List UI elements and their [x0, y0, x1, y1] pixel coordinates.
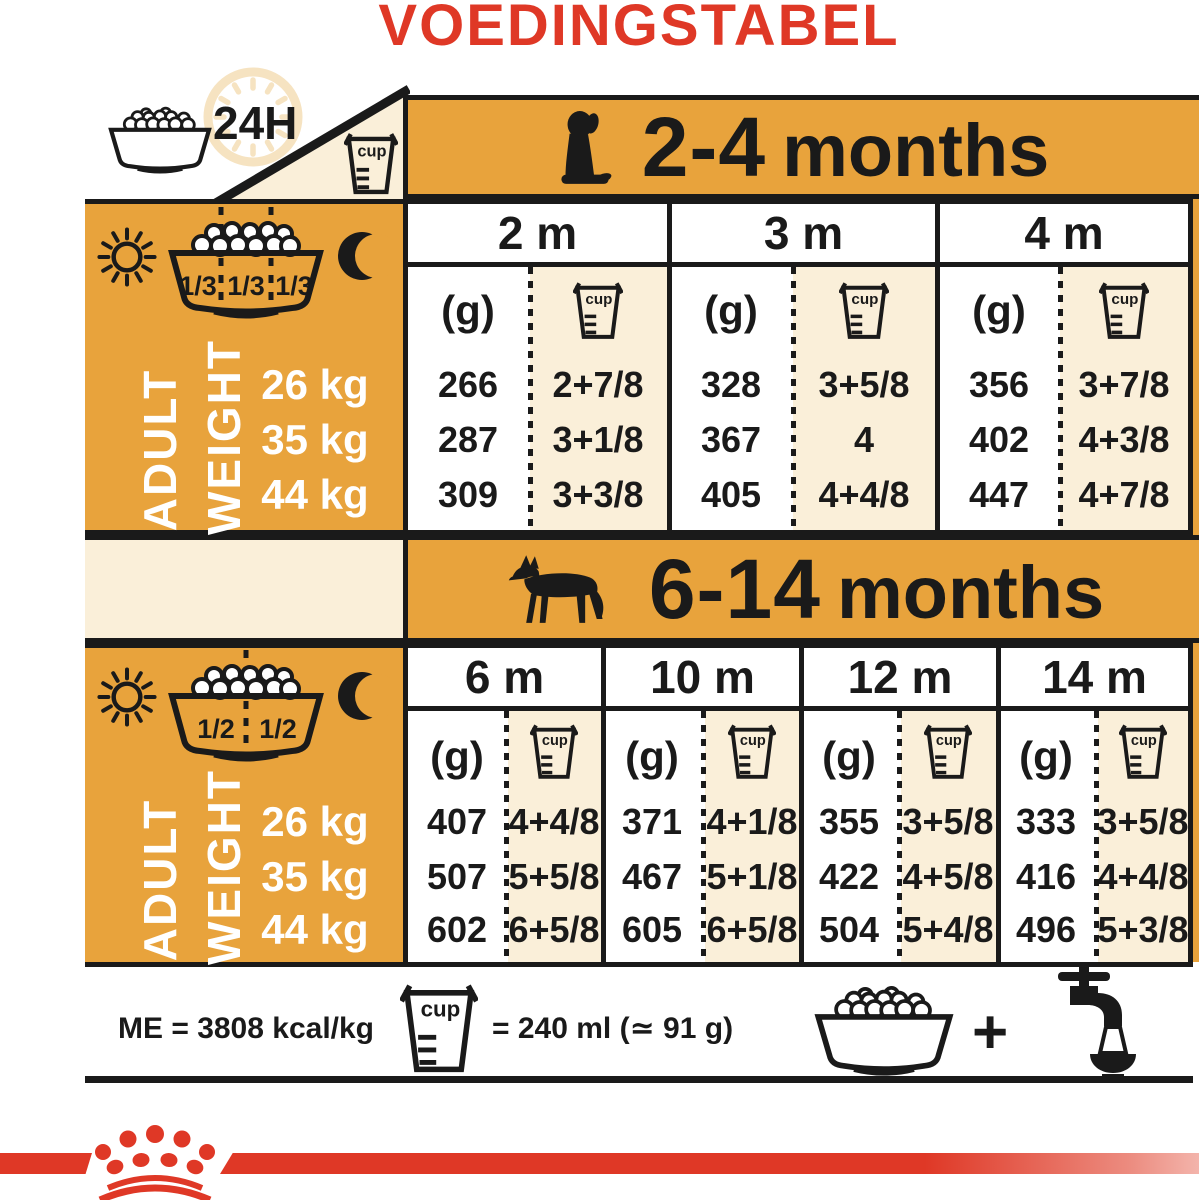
- gram-value: 266: [408, 363, 528, 407]
- month-header-cell: 14 m: [996, 643, 1193, 711]
- cup-value: 2+7/8: [533, 363, 663, 407]
- grams-header: (g): [408, 287, 528, 335]
- moon-icon: [338, 227, 390, 285]
- kibble-bowl-icon: [104, 106, 216, 176]
- cup-value: 4+7/8: [1059, 473, 1189, 517]
- gram-value: 356: [939, 363, 1059, 407]
- gram-value: 507: [402, 855, 512, 899]
- brand-stripe-right: [220, 1153, 1199, 1174]
- age-unit: months: [782, 108, 1049, 193]
- grams-header: (g): [597, 733, 707, 781]
- 24h-label: 24H: [213, 98, 297, 148]
- gram-value: 287: [408, 418, 528, 462]
- gram-value: 496: [991, 908, 1101, 952]
- plus-sign: +: [972, 998, 1008, 1068]
- month-header: 10 m: [650, 650, 755, 704]
- gram-value: 371: [597, 800, 707, 844]
- month-header-cell: 12 m: [799, 643, 996, 711]
- water-tap-icon: [1032, 966, 1144, 1078]
- month-header: 6 m: [465, 650, 544, 704]
- cup-value: 3+5/8: [893, 800, 1003, 844]
- cup-value: 3+7/8: [1059, 363, 1189, 407]
- grams-header: (g): [671, 287, 791, 335]
- weight-value: 26 kg: [240, 363, 390, 407]
- section-2-left-spacer: [85, 535, 403, 643]
- month-header: 2 m: [498, 206, 577, 260]
- grams-header: (g): [794, 733, 904, 781]
- cup-icon-label: cup: [1111, 291, 1138, 308]
- cup-value: 4+4/8: [799, 473, 929, 517]
- grams-header: (g): [402, 733, 512, 781]
- gram-value: 422: [794, 855, 904, 899]
- gram-value: 355: [794, 800, 904, 844]
- sun-icon: [95, 665, 159, 729]
- measuring-cup-icon: cup: [728, 723, 776, 781]
- measuring-cup-icon: cup: [573, 281, 623, 341]
- gram-value: 467: [597, 855, 707, 899]
- month-header-cell: 6 m: [403, 643, 601, 711]
- cup-value: 4+3/8: [1059, 418, 1189, 462]
- cup-icon-label: cup: [1131, 733, 1157, 749]
- cup-icon-label: cup: [542, 733, 568, 749]
- month-header-cell: 4 m: [935, 199, 1193, 267]
- gram-value: 416: [991, 855, 1101, 899]
- food-bowl-icon: [806, 986, 962, 1078]
- grams-header: (g): [991, 733, 1101, 781]
- brand-stripe-left: [0, 1153, 92, 1174]
- cup-equivalence-text: = 240 ml (≃ 91 g): [492, 1008, 733, 1050]
- weight-value: 35 kg: [240, 855, 390, 899]
- cup-value: 3+3/8: [533, 473, 663, 517]
- measuring-cup-icon: cup: [400, 982, 478, 1076]
- cup-value: 6+5/8: [697, 908, 807, 952]
- gram-value: 333: [991, 800, 1101, 844]
- gram-value: 405: [671, 473, 791, 517]
- weight-value: 35 kg: [240, 418, 390, 462]
- age-range: 6-14: [649, 541, 821, 638]
- dotted-divider: [791, 267, 796, 530]
- cup-icon-label: cup: [740, 733, 766, 749]
- gram-value: 309: [408, 473, 528, 517]
- month-header-cell: 10 m: [601, 643, 799, 711]
- cup-value: 5+5/8: [499, 855, 609, 899]
- gram-value: 602: [402, 908, 512, 952]
- cup-value: 4+1/8: [697, 800, 807, 844]
- gram-value: 328: [671, 363, 791, 407]
- month-header-cell: 2 m: [403, 199, 667, 267]
- age-range: 2-4: [642, 99, 766, 196]
- section-2-age-band: 6-14 months: [403, 535, 1199, 643]
- weight-value: 26 kg: [240, 800, 390, 844]
- cup-value: 3+5/8: [799, 363, 929, 407]
- cup-value: 3+5/8: [1088, 800, 1198, 844]
- cup-value: 5+1/8: [697, 855, 807, 899]
- gram-value: 367: [671, 418, 791, 462]
- adult-dog-icon: [503, 553, 619, 629]
- puppy-icon: [558, 109, 612, 187]
- month-header: 4 m: [1024, 206, 1103, 260]
- gram-value: 402: [939, 418, 1059, 462]
- meal-split-bowl-icon: 1/3 1/3 1/3: [158, 203, 334, 333]
- grams-header: (g): [939, 287, 1059, 335]
- adult-label: ADULT: [134, 785, 186, 975]
- weight-value: 44 kg: [240, 908, 390, 952]
- age-unit: months: [837, 550, 1104, 635]
- cup-value: 6+5/8: [499, 908, 609, 952]
- cup-value: 4+4/8: [1088, 855, 1198, 899]
- cup-icon-label: cup: [585, 291, 612, 308]
- gram-value: 504: [794, 908, 904, 952]
- gram-value: 447: [939, 473, 1059, 517]
- section-1-age-label: 2-4 months: [642, 99, 1050, 196]
- measuring-cup-icon: cup: [1119, 723, 1167, 781]
- weight-value: 44 kg: [240, 473, 390, 517]
- gram-value: 605: [597, 908, 707, 952]
- page-title: VOEDINGSTABEL: [85, 0, 1193, 56]
- month-header-cell: 3 m: [667, 199, 935, 267]
- cup-icon-label: cup: [421, 996, 461, 1021]
- section-1-age-band: 2-4 months: [403, 95, 1199, 199]
- measuring-cup-icon: cup: [924, 723, 972, 781]
- cup-value: 4+5/8: [893, 855, 1003, 899]
- measuring-cup-icon: cup: [839, 281, 889, 341]
- cup-icon-label: cup: [357, 142, 386, 160]
- month-header: 3 m: [764, 206, 843, 260]
- feeding-table-page: VOEDINGSTABEL 24H: [0, 0, 1199, 1200]
- bowl-fraction-label: 1/2: [197, 714, 235, 744]
- month-header: 12 m: [848, 650, 953, 704]
- month-header: 14 m: [1042, 650, 1147, 704]
- cup-value: 3+1/8: [533, 418, 663, 462]
- gram-value: 407: [402, 800, 512, 844]
- me-energy-text: ME = 3808 kcal/kg: [118, 1008, 374, 1050]
- measuring-cup-icon: cup: [530, 723, 578, 781]
- bowl-fraction-label: 1/3: [275, 271, 313, 301]
- bowl-fraction-label: 1/3: [227, 271, 265, 301]
- cup-icon-label: cup: [936, 733, 962, 749]
- cup-value: 4+4/8: [499, 800, 609, 844]
- section-2-age-label: 6-14 months: [649, 541, 1104, 638]
- sun-icon: [95, 225, 159, 289]
- adult-label: ADULT: [134, 355, 186, 545]
- cup-value: 5+4/8: [893, 908, 1003, 952]
- measuring-cup-icon: cup: [1099, 281, 1149, 341]
- measuring-cup-icon: cup: [344, 132, 398, 196]
- bowl-fraction-label: 1/3: [179, 271, 217, 301]
- cup-value: 5+3/8: [1088, 908, 1198, 952]
- meal-split-bowl-icon: 1/2 1/2: [158, 646, 334, 776]
- royal-canin-crown-logo: [82, 1122, 228, 1200]
- moon-icon: [338, 667, 390, 725]
- cup-icon-label: cup: [851, 291, 878, 308]
- cup-value: 4: [799, 418, 929, 462]
- bowl-fraction-label: 1/2: [259, 714, 297, 744]
